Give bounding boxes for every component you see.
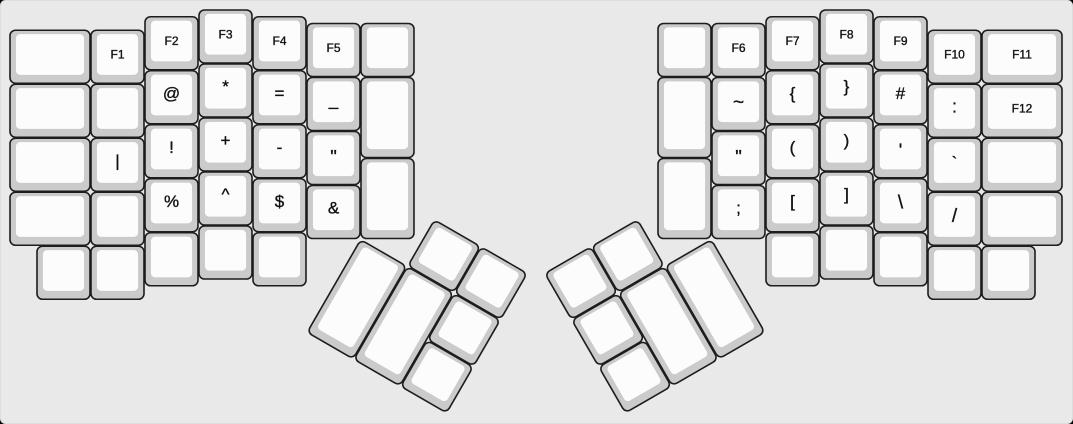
svg-text:~: ~ bbox=[733, 93, 744, 114]
svg-text:`: ` bbox=[952, 154, 958, 173]
svg-text:&: & bbox=[328, 199, 340, 218]
svg-text:(: ( bbox=[790, 138, 796, 157]
svg-text:/: / bbox=[952, 206, 958, 227]
svg-text:}: } bbox=[844, 77, 850, 96]
svg-text:[: [ bbox=[790, 192, 795, 211]
svg-text:#: # bbox=[896, 84, 906, 103]
svg-text:|: | bbox=[115, 151, 119, 170]
svg-text:F9: F9 bbox=[893, 34, 907, 48]
svg-text:F3: F3 bbox=[218, 27, 232, 41]
svg-text:F4: F4 bbox=[272, 34, 286, 48]
svg-text:@: @ bbox=[163, 84, 180, 103]
svg-text:F6: F6 bbox=[731, 41, 745, 55]
svg-text:": " bbox=[330, 146, 337, 167]
svg-text::: : bbox=[952, 96, 957, 116]
svg-text:F10: F10 bbox=[944, 48, 965, 62]
svg-text:": " bbox=[735, 146, 742, 167]
svg-text:F7: F7 bbox=[785, 34, 799, 48]
svg-text:F5: F5 bbox=[326, 41, 340, 55]
svg-text:F8: F8 bbox=[839, 27, 853, 41]
svg-text:-: - bbox=[277, 138, 283, 157]
svg-text:+: + bbox=[221, 131, 231, 150]
svg-text:F2: F2 bbox=[164, 34, 178, 48]
svg-text:%: % bbox=[164, 192, 179, 211]
svg-text:*: * bbox=[222, 77, 229, 96]
svg-text:_: _ bbox=[328, 91, 339, 110]
svg-text:=: = bbox=[275, 84, 285, 103]
svg-text:!: ! bbox=[169, 138, 174, 157]
svg-text:;: ; bbox=[736, 199, 741, 218]
svg-text:$: $ bbox=[275, 192, 285, 211]
svg-text:F1: F1 bbox=[110, 48, 124, 62]
svg-text:F11: F11 bbox=[1012, 48, 1032, 62]
svg-text:F12: F12 bbox=[1012, 102, 1033, 116]
svg-text:\: \ bbox=[898, 193, 904, 214]
svg-text:': ' bbox=[899, 139, 903, 160]
svg-text:]: ] bbox=[844, 185, 849, 204]
svg-text:^: ^ bbox=[222, 185, 230, 204]
svg-text:{: { bbox=[790, 84, 796, 103]
svg-text:): ) bbox=[844, 131, 850, 150]
